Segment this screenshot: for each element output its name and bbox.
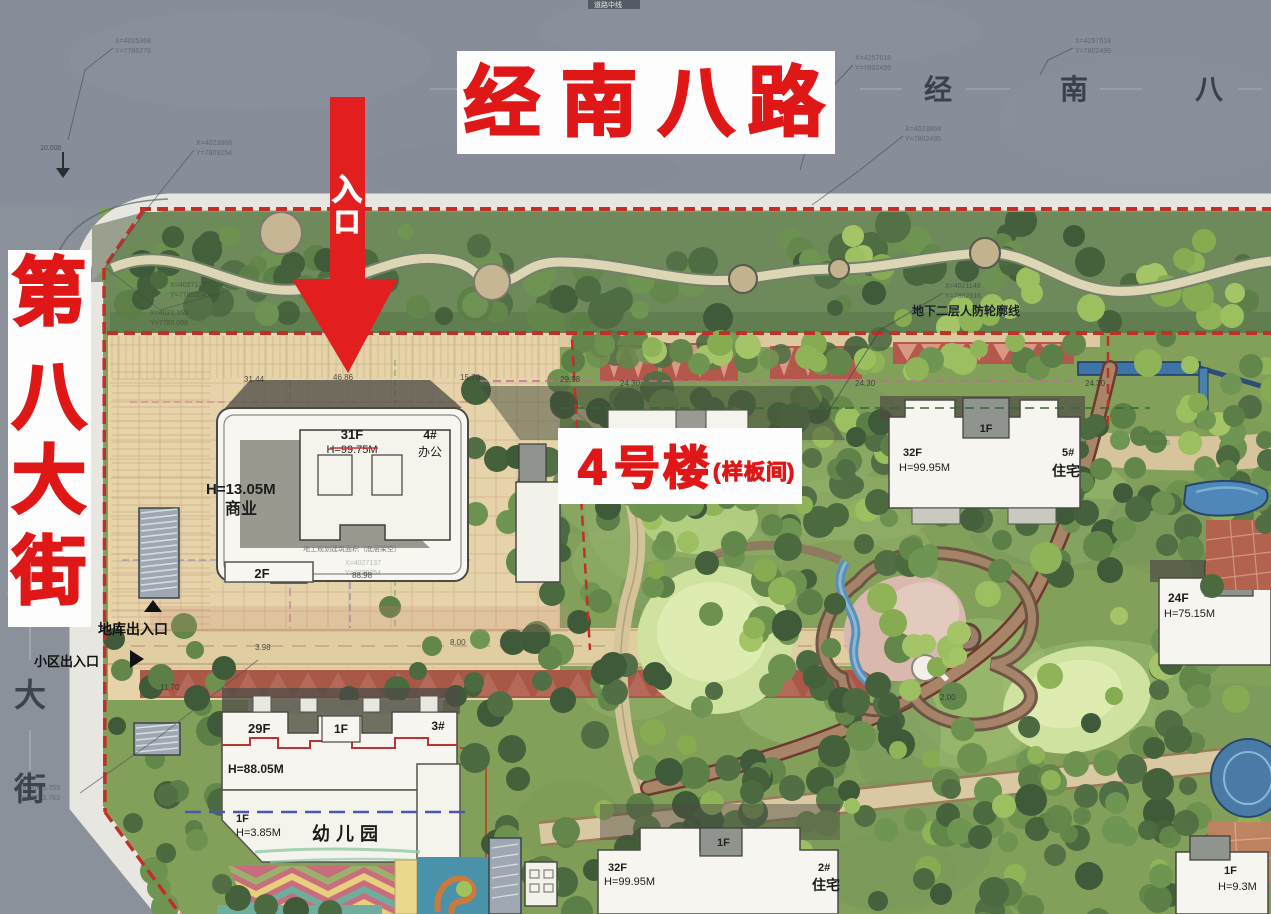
- svg-text:46.86: 46.86: [333, 373, 354, 382]
- svg-text:8.00: 8.00: [450, 638, 466, 647]
- svg-text:地上规划建筑面积（底层架空）: 地上规划建筑面积（底层架空）: [303, 544, 401, 553]
- svg-text:地库出入口: 地库出入口: [98, 621, 168, 637]
- svg-text:24.30: 24.30: [1085, 379, 1106, 388]
- svg-text:商业: 商业: [225, 499, 257, 518]
- svg-text:X=4023868: X=4023868: [905, 126, 941, 133]
- svg-text:道路中线: 道路中线: [594, 0, 622, 9]
- svg-text:1F: 1F: [717, 837, 730, 849]
- svg-text:X=4021148: X=4021148: [945, 283, 981, 290]
- svg-text:大: 大: [14, 677, 46, 713]
- svg-text:H=9.3M: H=9.3M: [1218, 881, 1257, 893]
- svg-text:H=99.95M: H=99.95M: [899, 462, 950, 474]
- svg-text:X=4021...: X=4021...: [1142, 430, 1172, 437]
- svg-text:4: 4: [578, 439, 606, 495]
- svg-text:1F: 1F: [1224, 865, 1237, 877]
- svg-text:1F: 1F: [334, 722, 348, 736]
- svg-text:Y=7802499: Y=7802499: [1075, 48, 1111, 55]
- svg-text:样: 样: [722, 460, 743, 484]
- svg-text:X=4257618: X=4257618: [855, 55, 891, 62]
- svg-text:板: 板: [744, 461, 766, 484]
- svg-text:1F: 1F: [980, 423, 993, 435]
- svg-text:住宅: 住宅: [1052, 463, 1080, 479]
- svg-text:南: 南: [1060, 74, 1088, 105]
- svg-text:Y=78025: Y=78025: [1142, 440, 1170, 447]
- svg-text:Y=7802495: Y=7802495: [905, 136, 941, 143]
- svg-text:2.00: 2.00: [940, 693, 956, 702]
- svg-text:楼: 楼: [663, 442, 709, 494]
- svg-text:32F: 32F: [608, 862, 627, 874]
- svg-text:H=75.15M: H=75.15M: [1164, 608, 1215, 620]
- svg-text:X=4025368: X=4025368: [115, 38, 151, 45]
- svg-text:15.70: 15.70: [460, 373, 481, 382]
- svg-text:H=99.75M: H=99.75M: [326, 444, 377, 456]
- svg-text:88.98: 88.98: [352, 571, 373, 580]
- svg-text:Y=7802499: Y=7802499: [855, 65, 891, 72]
- svg-text:Y=7809254: Y=7809254: [196, 150, 232, 157]
- svg-text:X=4023868: X=4023868: [196, 140, 232, 147]
- svg-text:3.98: 3.98: [255, 643, 271, 652]
- svg-text:H=99.95M: H=99.95M: [604, 876, 655, 888]
- svg-text:X=4027137: X=4027137: [345, 560, 381, 567]
- svg-text:大: 大: [12, 439, 86, 522]
- svg-text:小区出入口: 小区出入口: [34, 654, 99, 669]
- svg-text:八: 八: [1195, 74, 1224, 105]
- svg-text:住宅: 住宅: [812, 877, 840, 893]
- svg-text:H=3.85M: H=3.85M: [236, 827, 281, 839]
- svg-text:八: 八: [658, 61, 735, 146]
- svg-text:3#: 3#: [431, 719, 445, 733]
- svg-text:办公: 办公: [418, 444, 442, 459]
- svg-text:八: 八: [12, 355, 87, 438]
- svg-text:南: 南: [561, 61, 637, 146]
- svg-text:地下二层人防轮廓线: 地下二层人防轮廓线: [912, 303, 1020, 318]
- svg-text:(: (: [713, 459, 721, 484]
- svg-text:29F: 29F: [248, 721, 270, 736]
- svg-text:29.98: 29.98: [560, 375, 581, 384]
- svg-text:街: 街: [13, 771, 46, 807]
- svg-text:5#: 5#: [1062, 447, 1074, 459]
- svg-text:Y=7802616: Y=7802616: [945, 293, 981, 300]
- svg-text:24.30: 24.30: [855, 379, 876, 388]
- svg-text:X=4021.155: X=4021.155: [150, 310, 188, 317]
- svg-text:X=4027137: X=4027137: [170, 282, 206, 289]
- svg-text:经: 经: [464, 61, 540, 146]
- svg-text:31F: 31F: [341, 427, 363, 442]
- svg-text:4#: 4#: [423, 428, 437, 442]
- svg-text:路: 路: [748, 61, 825, 146]
- svg-text:31.44: 31.44: [244, 375, 265, 384]
- svg-text:入: 入: [332, 174, 362, 207]
- svg-text:1F: 1F: [236, 813, 249, 825]
- svg-text:Y=7785254: Y=7785254: [170, 292, 206, 299]
- svg-text:口: 口: [334, 207, 360, 237]
- svg-text:第: 第: [12, 251, 86, 334]
- svg-text:Y=7780.098: Y=7780.098: [150, 320, 188, 327]
- svg-text:X=4257618: X=4257618: [1075, 38, 1111, 45]
- svg-text:11.70: 11.70: [160, 683, 180, 692]
- svg-text:间: 间: [766, 461, 787, 484]
- svg-text:24.30: 24.30: [620, 379, 641, 388]
- svg-text:H=13.05M: H=13.05M: [206, 481, 276, 498]
- svg-text:10.000: 10.000: [40, 145, 62, 152]
- svg-text:街: 街: [11, 530, 86, 613]
- svg-text:幼儿园: 幼儿园: [312, 823, 384, 844]
- svg-text:H=88.05M: H=88.05M: [228, 762, 284, 776]
- svg-text:号: 号: [614, 442, 660, 494]
- svg-text:): ): [787, 459, 794, 484]
- svg-text:2F: 2F: [254, 566, 269, 581]
- svg-text:经: 经: [924, 73, 952, 105]
- svg-text:2#: 2#: [818, 862, 830, 874]
- svg-text:Y=7786276: Y=7786276: [115, 48, 151, 55]
- svg-text:24F: 24F: [1168, 591, 1189, 605]
- svg-text:32F: 32F: [903, 447, 922, 459]
